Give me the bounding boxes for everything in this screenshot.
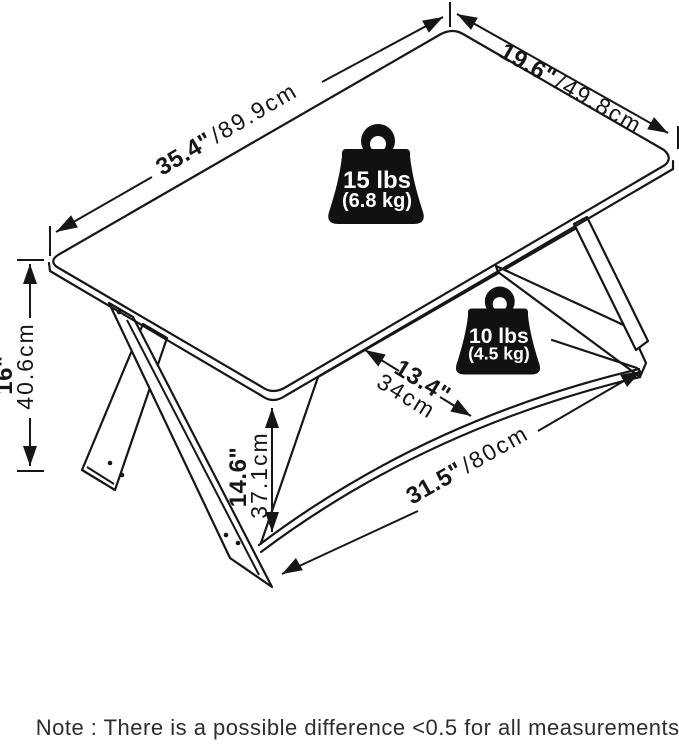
weight-shelf-kg: (4.5 kg) [468,344,530,364]
dim-shelf-depth: 13.4" 34cm [365,350,471,426]
lower-shelf [259,340,640,552]
weight-top-kg: (6.8 kg) [342,190,412,212]
dim-shelf-length: 31.5"/80cm [282,371,641,574]
measurement-note: Note : There is a possible difference <0… [36,715,679,740]
dim-height: 16" 40.6cm [0,260,44,471]
coffee-table-dimension-diagram: 35.4"/89.9cm 19.6"/49.8cm 16" 40.6cm 14.… [0,0,679,747]
dim-clearance-label-cm: 37.1cm [246,431,272,518]
weight-capacity-shelf-badge: 10 lbs (4.5 kg) [456,287,540,375]
diagram-canvas: 35.4"/89.9cm 19.6"/49.8cm 16" 40.6cm 14.… [0,0,679,747]
back-left-leg-panel [82,324,167,490]
dim-height-label-cm: 40.6cm [12,322,38,409]
